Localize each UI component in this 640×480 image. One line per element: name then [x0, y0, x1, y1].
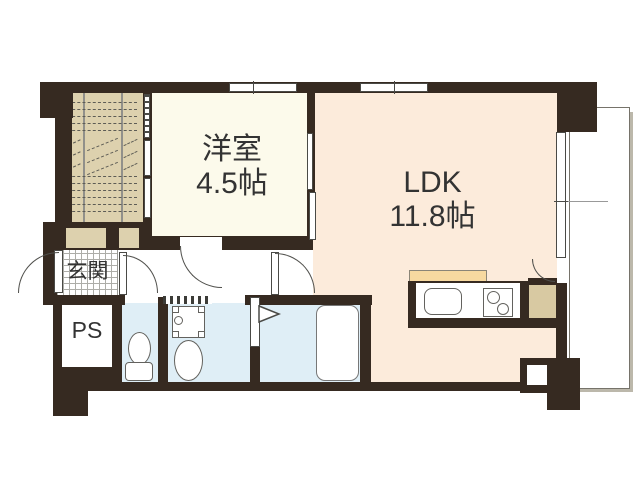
pan-drain: [174, 316, 183, 325]
room-size: 4.5帖: [152, 167, 312, 201]
room-name: 洋室: [152, 133, 312, 167]
balcony-divider-tick: [566, 201, 608, 202]
pan-corner-tab: [198, 331, 205, 338]
window-ldk-east: [556, 132, 566, 258]
washroom-accordion-door: [163, 296, 212, 304]
toilet-bowl: [128, 332, 151, 365]
stair-step: [67, 183, 137, 184]
wall-bottom: [53, 382, 523, 391]
window-center-tick: [554, 201, 568, 202]
stair-step: [67, 211, 137, 212]
wall-room-south: [147, 236, 313, 250]
bottom-right-notch: [527, 365, 547, 385]
toilet-door-swing: [123, 255, 158, 293]
window-west-room: [229, 83, 297, 92]
room-name: PS: [62, 318, 112, 344]
stair-step: [67, 197, 137, 198]
pan-corner-tab: [172, 331, 179, 338]
floor-plan: 洋室 4.5帖 LDK 11.8帖 玄関 PS: [0, 0, 640, 480]
stair-step: [67, 116, 137, 117]
refrigerator-space: [529, 285, 556, 318]
stair-step: [67, 190, 137, 191]
balcony: [569, 107, 630, 389]
stair-step: [67, 109, 137, 110]
stair-stringer-line: [83, 93, 85, 222]
western-room-door-swing: [180, 246, 222, 288]
shoe-cabinet: [66, 228, 106, 248]
wall-toilet-washroom: [158, 297, 168, 383]
stair-wall-panel: [144, 140, 151, 176]
wall-washroom-bath: [250, 345, 260, 383]
window-center-tick: [253, 81, 254, 94]
bathroom-door-swing-marker: [258, 305, 282, 325]
stove-burner: [497, 303, 509, 315]
bathtub: [316, 305, 359, 381]
wash-basin: [174, 340, 203, 381]
stair-step: [67, 176, 137, 177]
ldk-door-swing: [275, 253, 315, 293]
stair-step: [67, 130, 137, 131]
wall-hall-south-b: [245, 295, 372, 305]
ldk-label: LDK 11.8帖: [350, 166, 515, 233]
room-name: LDK: [350, 166, 515, 200]
entrance-door-swing: [18, 252, 59, 293]
room-size: 11.8帖: [350, 200, 515, 234]
kitchen-sink: [424, 288, 462, 315]
stove-burner: [487, 291, 500, 304]
genkan-label: 玄関: [57, 260, 118, 284]
wall-top-right-block: [557, 82, 597, 132]
wall-right-lower: [556, 283, 567, 360]
shoe-cabinet: [119, 228, 139, 248]
room-name: 玄関: [57, 260, 118, 284]
stair-step: [67, 102, 137, 103]
wall-bottom-right-step-b: [547, 358, 580, 410]
stair-wall-panel: [144, 178, 151, 218]
western-room-label: 洋室 4.5帖: [152, 133, 312, 200]
stair-wall-vent: [144, 94, 150, 138]
window-center-tick: [394, 81, 395, 94]
pan-corner-tab: [198, 306, 205, 313]
pan-corner-tab: [172, 306, 179, 313]
stair-step: [67, 123, 137, 124]
wall-top: [40, 82, 597, 93]
ps-label: PS: [62, 318, 112, 344]
toilet-tank: [125, 362, 153, 381]
wall-bath-ldk: [360, 295, 371, 385]
stair-step: [67, 204, 137, 205]
wall-left-upper: [55, 93, 72, 222]
